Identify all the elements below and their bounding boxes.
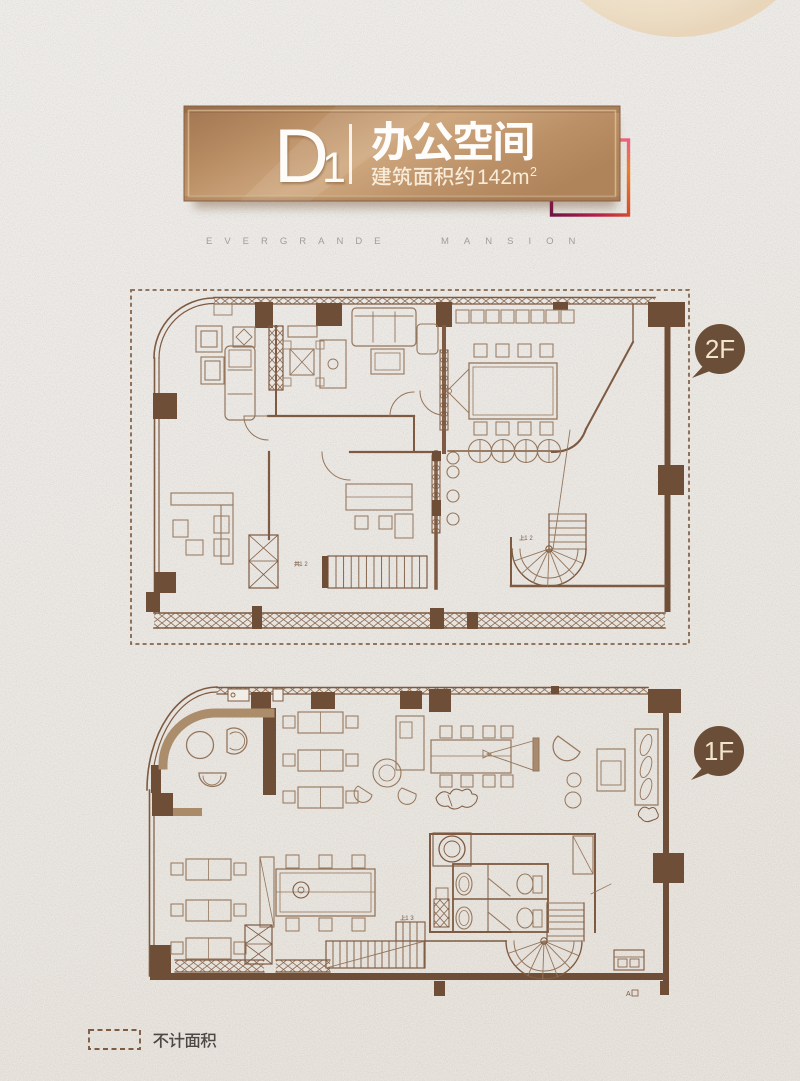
svg-text:2F: 2F <box>705 334 735 364</box>
svg-text:1: 1 <box>322 144 346 192</box>
svg-text:A: A <box>626 991 631 998</box>
svg-text:142m: 142m <box>477 166 530 189</box>
svg-text:1F: 1F <box>704 736 734 766</box>
svg-text:MANSION: MANSION <box>441 236 590 247</box>
svg-text:2: 2 <box>530 165 537 179</box>
svg-text:EVERGRANDE: EVERGRANDE <box>206 236 393 247</box>
svg-text:D: D <box>274 114 329 199</box>
